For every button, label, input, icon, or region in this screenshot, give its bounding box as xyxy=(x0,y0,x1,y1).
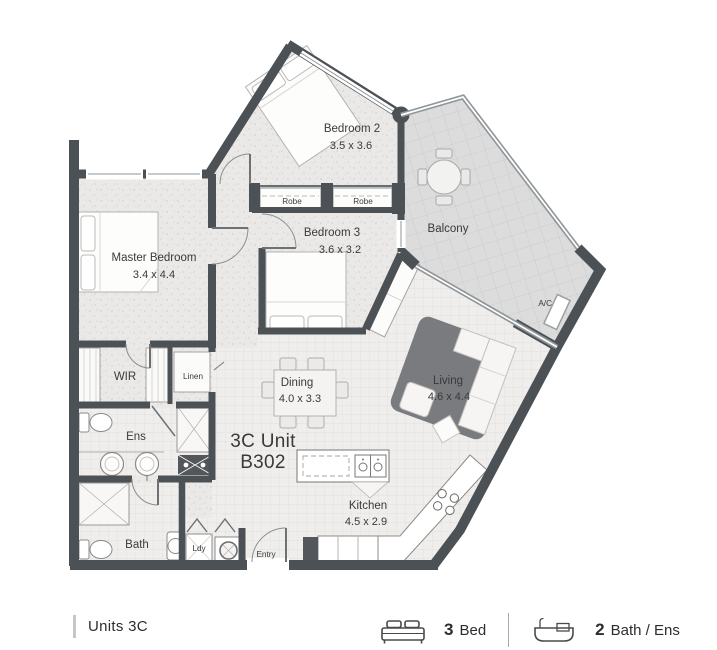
ldy-label: Ldy xyxy=(192,544,206,553)
ac-label: A/C xyxy=(538,299,552,308)
basin-icon xyxy=(136,453,159,476)
floorplan-page: Bedroom 2 3.5 x 3.6 Bedroom 3 3.6 x 3.2 … xyxy=(0,0,717,650)
unit-name-line1: 3C Unit xyxy=(230,431,296,452)
linen-label: Linen xyxy=(183,372,203,381)
bedroom2-dims: 3.5 x 3.6 xyxy=(330,140,372,152)
dining-label: Dining xyxy=(281,377,314,389)
bath-label: Bath / Ens xyxy=(611,622,680,639)
bedroom3-dims: 3.6 x 3.2 xyxy=(319,244,361,256)
basin-icon xyxy=(101,453,124,476)
bed-label: Bed xyxy=(459,622,486,639)
kitchen-dims: 4.5 x 2.9 xyxy=(345,516,387,528)
bath-icon xyxy=(531,615,577,645)
master-bedroom-label: Master Bedroom xyxy=(111,252,196,264)
balcony-label: Balcony xyxy=(428,223,469,235)
fridge-icon xyxy=(303,537,318,563)
bath-label: Bath xyxy=(125,539,149,551)
dining-dims: 4.0 x 3.3 xyxy=(279,393,321,405)
bath-stat: 2Bath / Ens xyxy=(595,620,680,640)
bedroom3-bed-icon xyxy=(266,252,346,332)
entry-label: Entry xyxy=(256,550,276,559)
units-label: Units 3C xyxy=(88,618,148,635)
units-label-block: Units 3C xyxy=(73,615,148,638)
kitchen-label: Kitchen xyxy=(349,500,387,512)
toilet-icon xyxy=(79,540,89,559)
robe-label-1: Robe xyxy=(282,197,302,206)
toilet-icon xyxy=(79,413,89,432)
bath-count: 2 xyxy=(595,620,604,639)
bed-icon xyxy=(380,615,426,645)
floorplan-drawing: Bedroom 2 3.5 x 3.6 Bedroom 3 3.6 x 3.2 … xyxy=(0,0,717,606)
legend: 3Bed 2Bath / Ens xyxy=(380,613,680,647)
ens-label: Ens xyxy=(126,431,146,443)
living-dims: 4.6 x 4.4 xyxy=(428,391,470,403)
living-label: Living xyxy=(433,375,463,387)
wir-label: WIR xyxy=(114,371,136,383)
legend-divider xyxy=(508,613,509,647)
master-bedroom-dims: 3.4 x 4.4 xyxy=(133,269,175,281)
bedroom2-label: Bedroom 2 xyxy=(324,123,380,135)
footer: Units 3C 3Bed 2Bath / Ens xyxy=(0,606,717,650)
bed-count: 3 xyxy=(444,620,453,639)
robe-label-2: Robe xyxy=(353,197,373,206)
bedroom3-label: Bedroom 3 xyxy=(304,227,360,239)
unit-name-line2: B302 xyxy=(240,452,286,473)
bed-stat: 3Bed xyxy=(444,620,486,640)
